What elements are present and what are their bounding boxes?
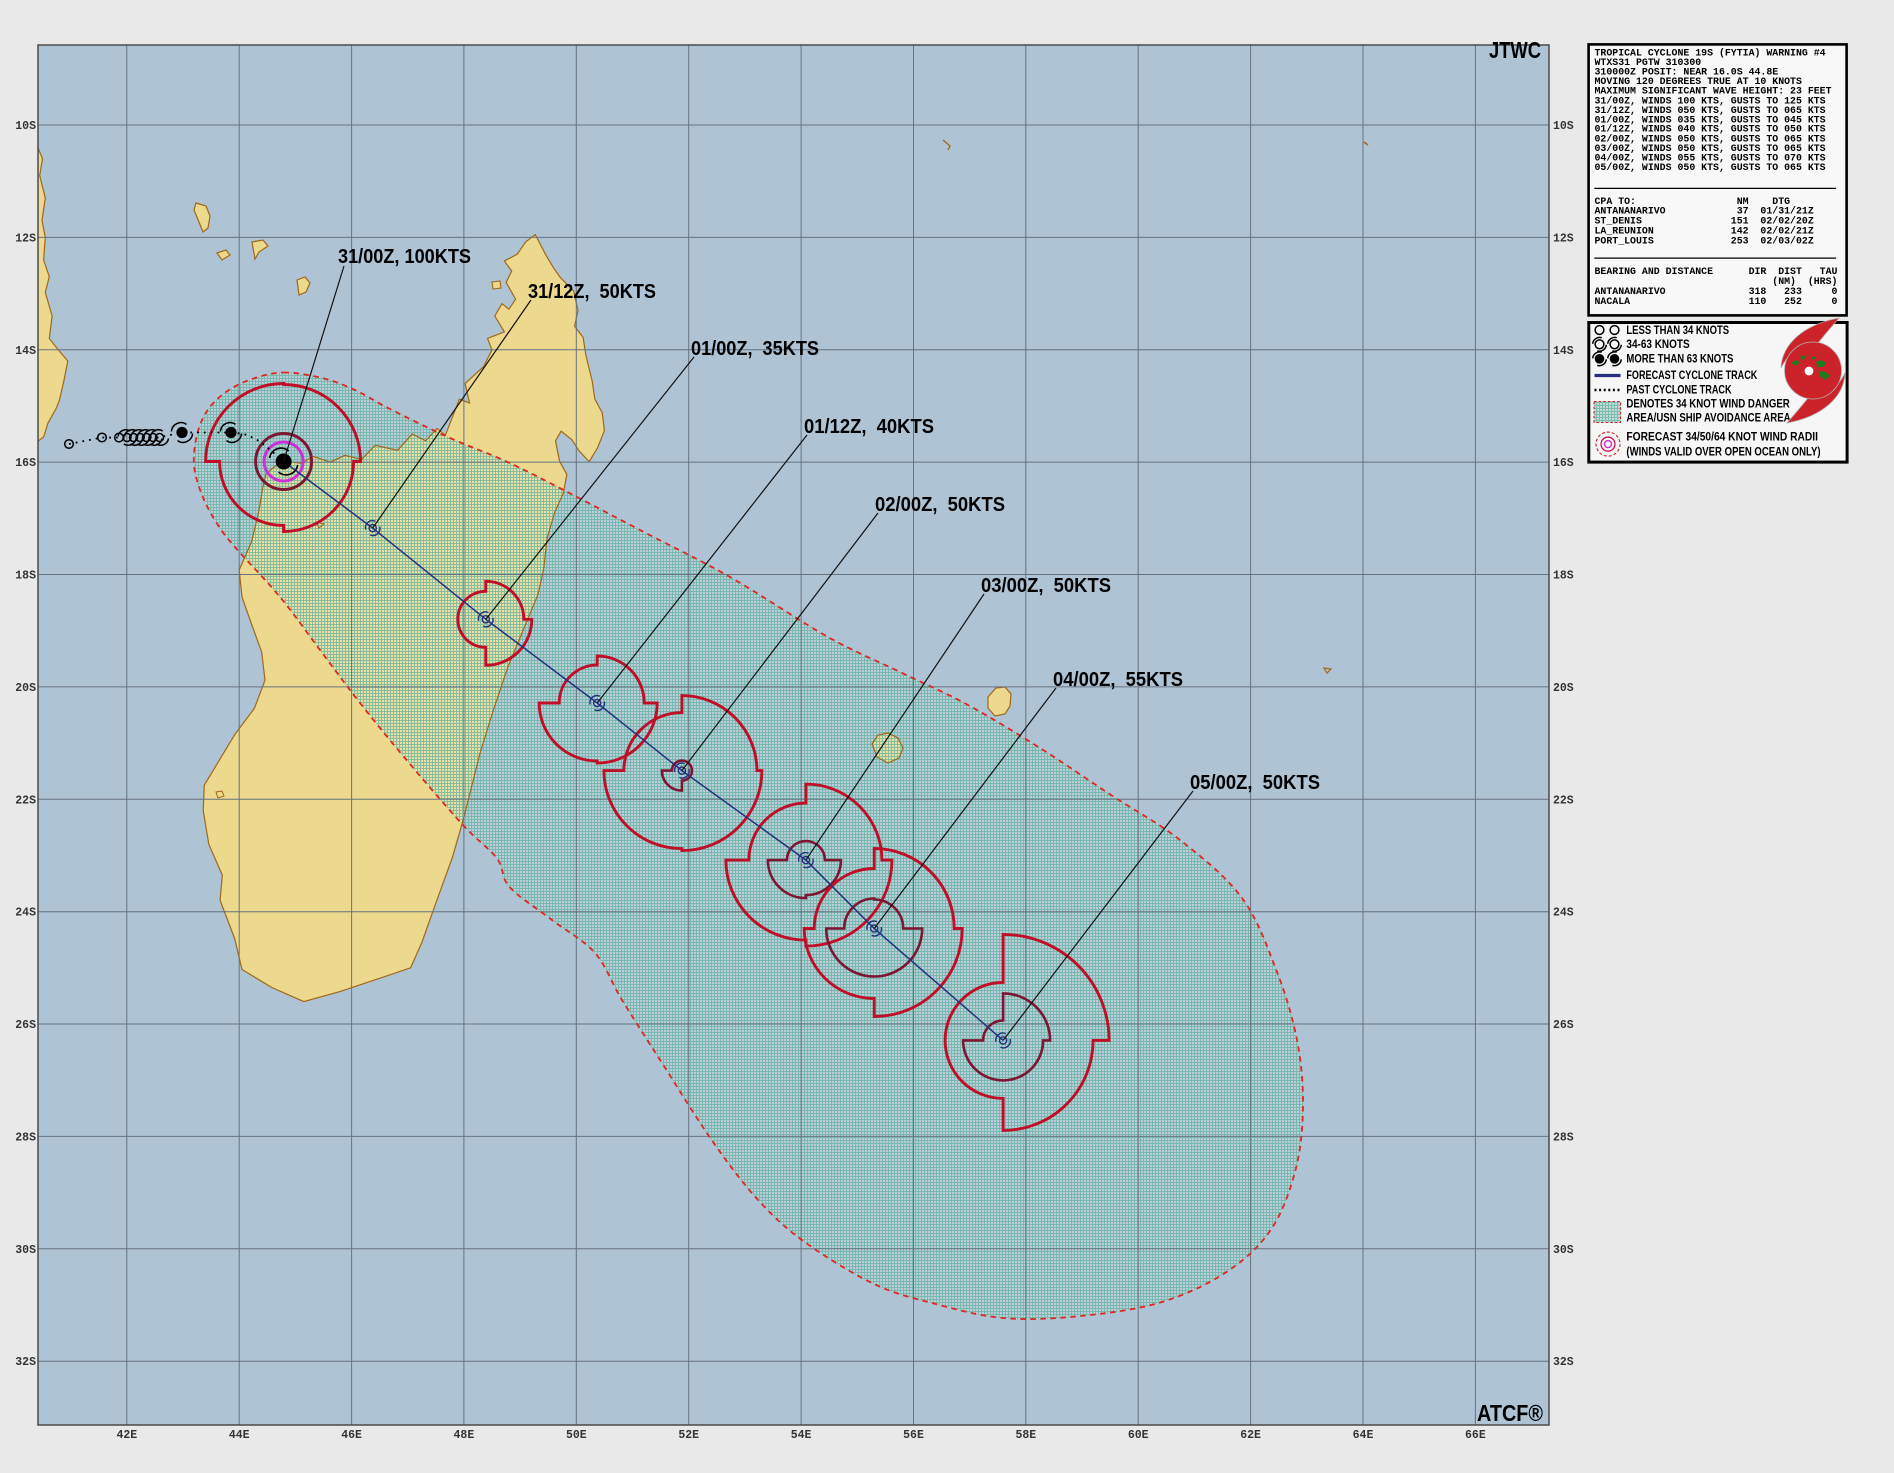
svg-text:58E: 58E — [1015, 1429, 1036, 1442]
svg-text:18S: 18S — [15, 570, 36, 583]
svg-text:30S: 30S — [15, 1244, 36, 1257]
svg-text:LESS THAN 34 KNOTS: LESS THAN 34 KNOTS — [1626, 323, 1729, 337]
svg-text:ATCF®: ATCF® — [1477, 1400, 1543, 1426]
svg-text:26S: 26S — [15, 1019, 36, 1032]
svg-text:46E: 46E — [341, 1429, 362, 1442]
svg-text:01/00Z, 35KTS: 01/00Z, 35KTS — [691, 337, 819, 360]
svg-text:PORT_LOUIS 253 02: PORT_LOUIS 253 02/03/02Z — [1595, 235, 1814, 246]
svg-text:MORE THAN 63 KNOTS: MORE THAN 63 KNOTS — [1626, 351, 1733, 365]
svg-text:64E: 64E — [1353, 1429, 1374, 1442]
svg-text:14S: 14S — [1553, 345, 1574, 358]
svg-text:20S: 20S — [1553, 682, 1574, 695]
svg-text:AREA/USN SHIP AVOIDANCE AREA: AREA/USN SHIP AVOIDANCE AREA — [1626, 411, 1790, 425]
svg-text:28S: 28S — [15, 1131, 36, 1144]
svg-text:48E: 48E — [454, 1429, 475, 1442]
svg-text:05/00Z, WINDS 050 KTS, GUSTS T: 05/00Z, WINDS 050 KTS, GUSTS TO 065 KTS — [1595, 162, 1826, 173]
svg-text:31/00Z, 100KTS: 31/00Z, 100KTS — [338, 245, 471, 268]
svg-text:52E: 52E — [678, 1429, 699, 1442]
svg-text:50E: 50E — [566, 1429, 587, 1442]
svg-text:24S: 24S — [1553, 907, 1574, 920]
svg-text:16S: 16S — [1553, 457, 1574, 470]
svg-text:44E: 44E — [229, 1429, 250, 1442]
svg-text:(WINDS VALID OVER OPEN OCEAN O: (WINDS VALID OVER OPEN OCEAN ONLY) — [1626, 445, 1820, 459]
svg-text:32S: 32S — [15, 1356, 36, 1369]
svg-text:FORECAST 34/50/64 KNOT WIND RA: FORECAST 34/50/64 KNOT WIND RADII — [1626, 430, 1818, 444]
svg-text:22S: 22S — [15, 794, 36, 807]
svg-text:22S: 22S — [1553, 794, 1574, 807]
svg-text:31/12Z, 50KTS: 31/12Z, 50KTS — [528, 280, 656, 303]
svg-text:20S: 20S — [15, 682, 36, 695]
svg-text:34-63 KNOTS: 34-63 KNOTS — [1626, 337, 1689, 351]
svg-text:56E: 56E — [903, 1429, 924, 1442]
svg-text:PAST CYCLONE TRACK: PAST CYCLONE TRACK — [1626, 382, 1731, 396]
svg-text:42E: 42E — [116, 1429, 137, 1442]
svg-text:01/12Z, 40KTS: 01/12Z, 40KTS — [804, 415, 934, 438]
svg-text:14S: 14S — [15, 345, 36, 358]
svg-text:FORECAST CYCLONE TRACK: FORECAST CYCLONE TRACK — [1626, 368, 1757, 382]
svg-text:16S: 16S — [15, 457, 36, 470]
svg-text:12S: 12S — [1553, 232, 1574, 245]
svg-text:18S: 18S — [1553, 570, 1574, 583]
svg-text:24S: 24S — [15, 907, 36, 920]
svg-text:12S: 12S — [15, 232, 36, 245]
svg-text:66E: 66E — [1465, 1429, 1486, 1442]
svg-text:54E: 54E — [791, 1429, 812, 1442]
svg-text:26S: 26S — [1553, 1019, 1574, 1032]
svg-text:30S: 30S — [1553, 1244, 1574, 1257]
svg-text:28S: 28S — [1553, 1131, 1574, 1144]
svg-text:JTWC: JTWC — [1489, 37, 1541, 63]
svg-text:02/00Z, 50KTS: 02/00Z, 50KTS — [875, 493, 1005, 516]
svg-text:DENOTES 34 KNOT WIND DANGER: DENOTES 34 KNOT WIND DANGER — [1626, 397, 1790, 411]
svg-text:60E: 60E — [1128, 1429, 1149, 1442]
svg-text:32S: 32S — [1553, 1356, 1574, 1369]
svg-text:10S: 10S — [15, 120, 36, 133]
svg-text:05/00Z, 50KTS: 05/00Z, 50KTS — [1190, 771, 1320, 794]
svg-text:NACALA 110: NACALA 110 252 0 — [1595, 296, 1838, 307]
svg-text:62E: 62E — [1240, 1429, 1261, 1442]
svg-text:03/00Z, 50KTS: 03/00Z, 50KTS — [981, 574, 1111, 597]
svg-text:10S: 10S — [1553, 120, 1574, 133]
svg-text:04/00Z, 55KTS: 04/00Z, 55KTS — [1053, 668, 1183, 691]
